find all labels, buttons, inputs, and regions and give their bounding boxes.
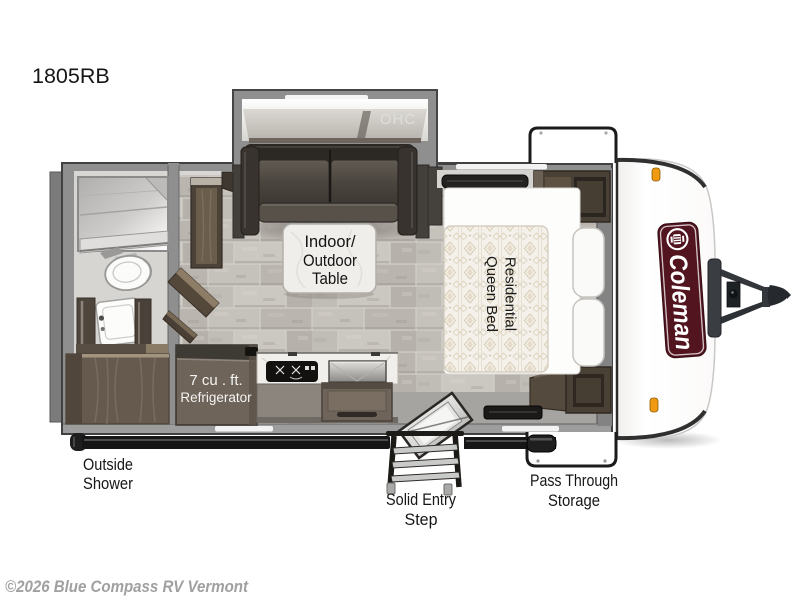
svg-text:Shower: Shower xyxy=(83,475,133,493)
svg-text:Refrigerator: Refrigerator xyxy=(180,390,252,405)
svg-text:7 cu . ft.: 7 cu . ft. xyxy=(189,372,242,389)
svg-text:Queen Bed: Queen Bed xyxy=(483,256,500,332)
svg-text:Indoor/: Indoor/ xyxy=(305,232,356,251)
svg-text:Step: Step xyxy=(405,510,438,529)
svg-text:OHC: OHC xyxy=(380,111,416,128)
svg-text:©2026 Blue Compass RV Vermont: ©2026 Blue Compass RV Vermont xyxy=(5,577,249,596)
svg-text:Outside: Outside xyxy=(83,456,133,474)
svg-text:Outdoor: Outdoor xyxy=(303,251,357,270)
svg-text:1805RB: 1805RB xyxy=(32,64,110,88)
svg-text:Solid Entry: Solid Entry xyxy=(386,490,456,509)
svg-text:Table: Table xyxy=(312,269,348,288)
svg-text:Pass Through: Pass Through xyxy=(530,471,618,490)
svg-text:Residential: Residential xyxy=(502,257,519,331)
svg-text:Storage: Storage xyxy=(548,491,600,510)
